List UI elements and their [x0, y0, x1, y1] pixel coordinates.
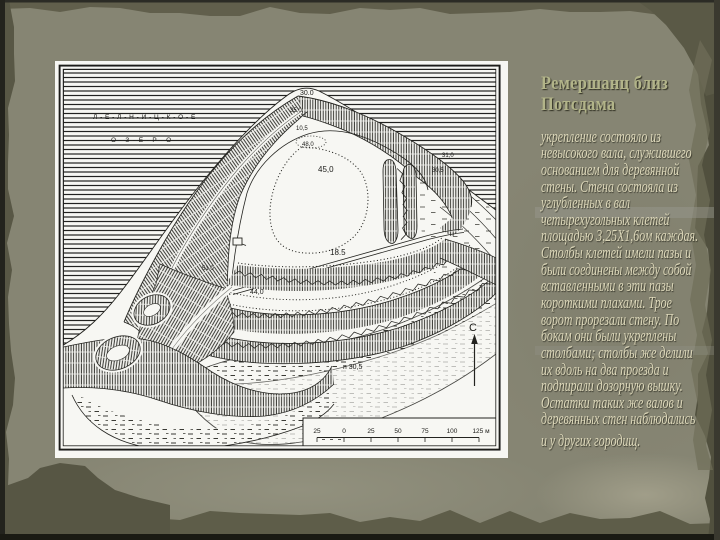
- svg-text:125 м: 125 м: [472, 428, 490, 435]
- svg-text:10,5: 10,5: [296, 126, 308, 132]
- svg-text:0: 0: [342, 428, 346, 435]
- svg-text:50: 50: [394, 428, 402, 435]
- svg-text:п 30,5: п 30,5: [343, 364, 362, 371]
- svg-text:18.5: 18.5: [330, 248, 346, 257]
- svg-text:30.0: 30.0: [300, 90, 314, 97]
- svg-text:С: С: [469, 322, 477, 334]
- svg-text:Л-Е-Л-Н-И-Ц-К-О-Е: Л-Е-Л-Н-И-Ц-К-О-Е: [93, 114, 198, 121]
- svg-text:100: 100: [447, 428, 458, 435]
- svg-text:48,0: 48,0: [302, 142, 314, 148]
- svg-text:45,0: 45,0: [318, 165, 334, 174]
- svg-text:35,0: 35,0: [290, 108, 302, 114]
- svg-text:31,0: 31,0: [442, 153, 454, 159]
- svg-text:25: 25: [313, 428, 321, 435]
- svg-text:25: 25: [367, 428, 375, 435]
- svg-text:О-З-Е-Р-О: О-З-Е-Р-О: [111, 137, 175, 144]
- svg-text:51,0: 51,0: [202, 266, 214, 272]
- svg-text:30,5: 30,5: [432, 168, 444, 174]
- svg-text:75: 75: [421, 428, 429, 435]
- svg-text:44,0: 44,0: [250, 289, 264, 296]
